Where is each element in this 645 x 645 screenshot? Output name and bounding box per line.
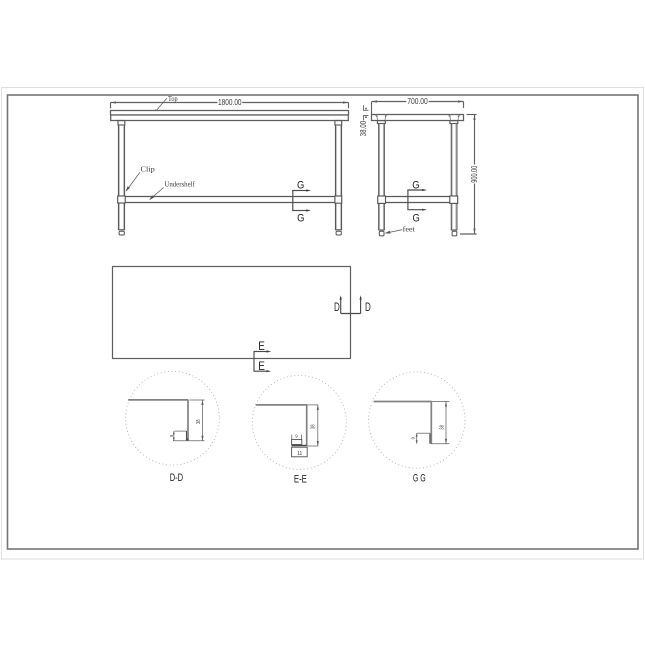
svg-text:38.00: 38.00	[359, 120, 368, 136]
svg-text:D-D: D-D	[170, 472, 183, 484]
svg-text:G G: G G	[413, 472, 426, 484]
svg-text:feet: feet	[403, 225, 416, 234]
svg-text:900.00: 900.00	[470, 165, 479, 182]
svg-text:Undershelf: Undershelf	[164, 179, 195, 188]
svg-text:E: E	[258, 361, 265, 373]
svg-text:G: G	[412, 179, 419, 191]
svg-text:38: 38	[310, 425, 316, 430]
svg-text:E: E	[258, 341, 265, 353]
svg-text:D: D	[334, 302, 340, 314]
svg-text:Clip: Clip	[141, 165, 156, 174]
svg-text:Top: Top	[168, 94, 178, 103]
svg-text:G: G	[297, 212, 304, 224]
svg-text:E-E: E-E	[294, 474, 307, 486]
svg-text:38: 38	[196, 420, 202, 425]
svg-text:D: D	[365, 302, 371, 314]
svg-text:700.00: 700.00	[407, 97, 428, 106]
svg-text:G: G	[412, 213, 419, 225]
svg-text:G: G	[297, 179, 304, 191]
svg-text:1800.00: 1800.00	[218, 98, 242, 107]
svg-text:11: 11	[297, 451, 302, 457]
svg-text:38: 38	[440, 425, 446, 430]
